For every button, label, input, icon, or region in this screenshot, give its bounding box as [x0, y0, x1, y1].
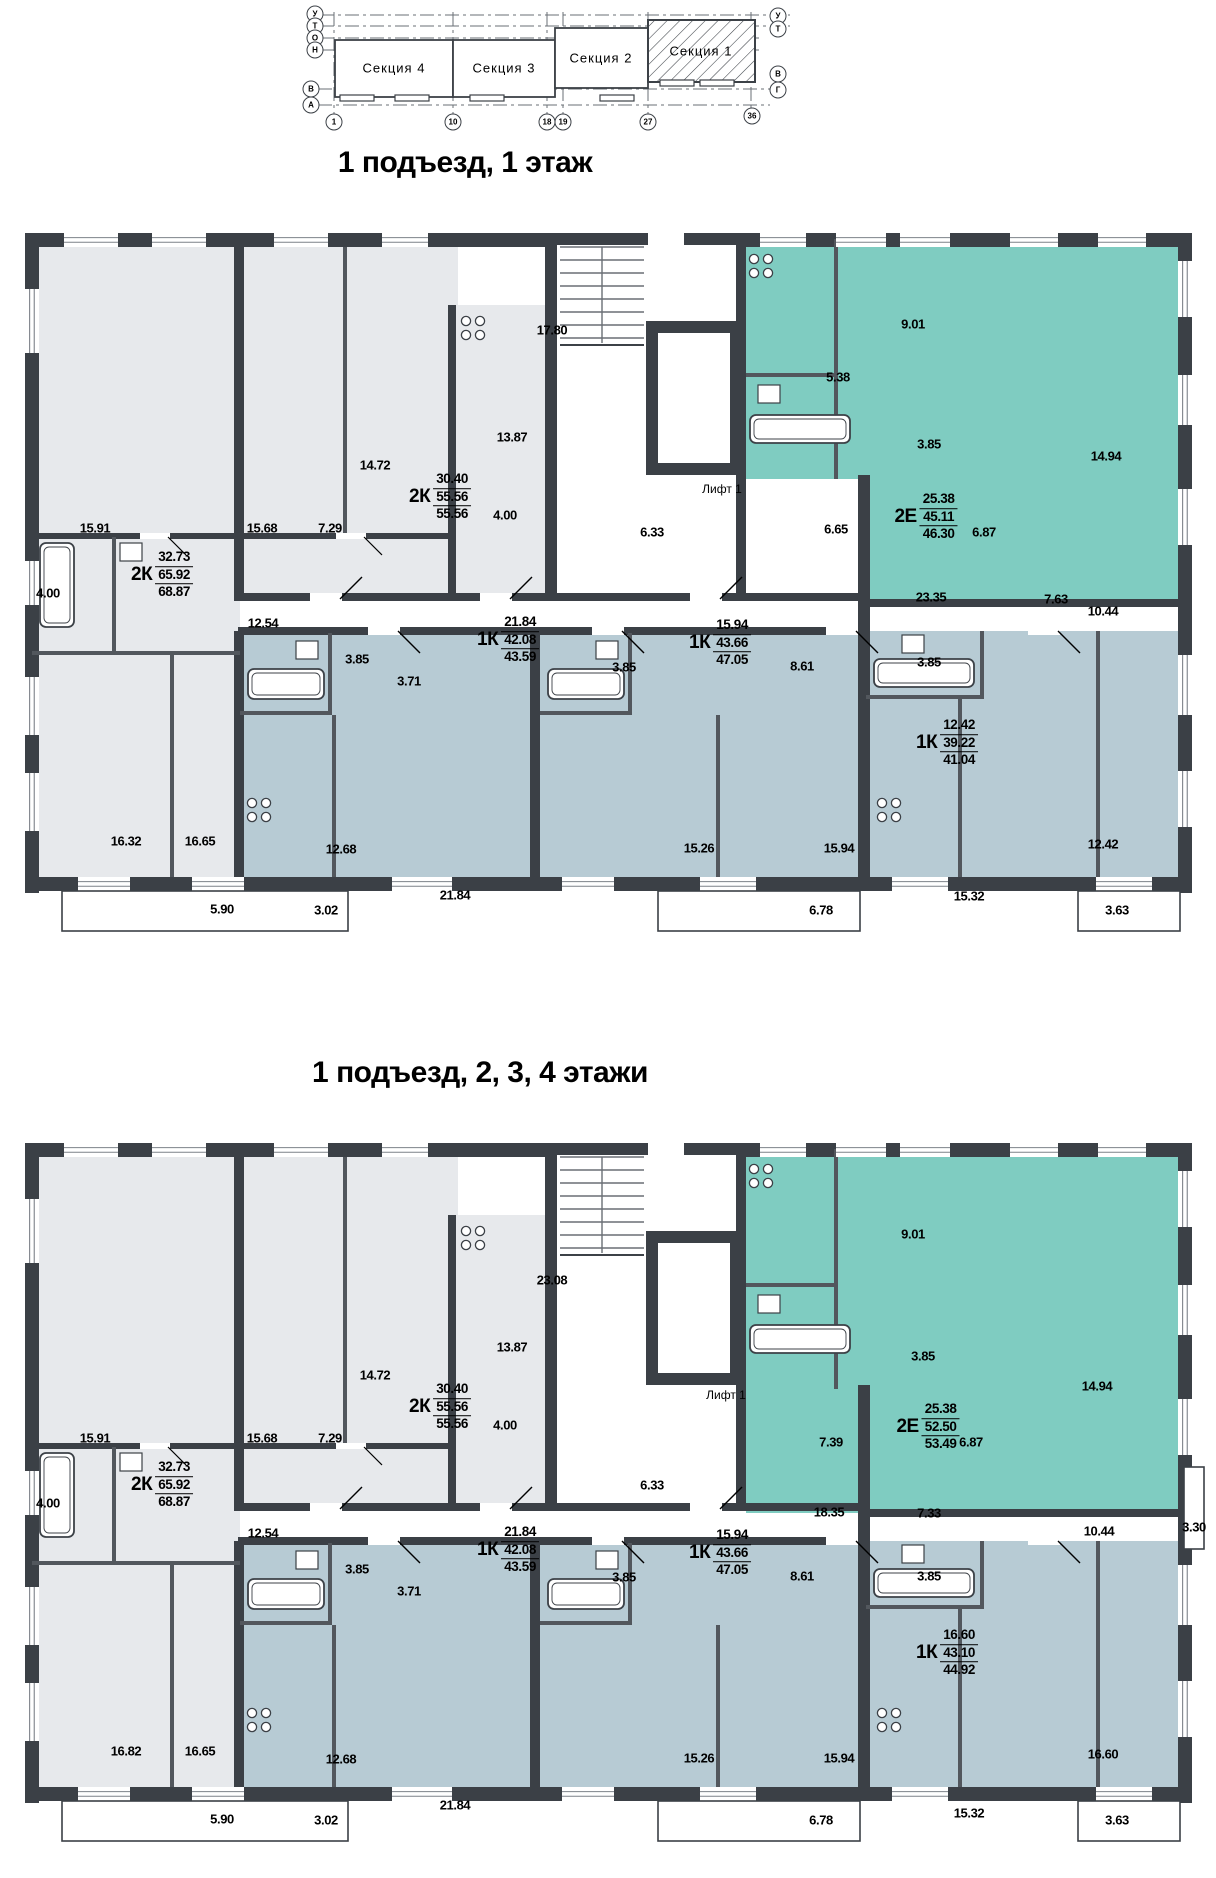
- axis-marker: В: [770, 66, 787, 83]
- apartment-area-value: 55.56: [433, 1399, 471, 1417]
- apartment-type: 2К: [131, 564, 152, 586]
- floor-plan-1: 15.9114.7215.687.2913.874.004.0012.5416.…: [0, 225, 1216, 965]
- dimension-label: 3.63: [1105, 1814, 1129, 1827]
- apartment-area-label: 2Е25.3852.5053.49: [896, 1401, 959, 1453]
- dimension-label: 4.00: [493, 509, 517, 522]
- dimension-label: 8.61: [790, 1570, 814, 1583]
- floorplan-page: Секция 4Секция 3Секция 2Секция 1УТОНВАУТ…: [0, 0, 1216, 1878]
- dimension-label: 7.29: [318, 1432, 342, 1445]
- dimension-label: 6.65: [824, 523, 848, 536]
- apartment-area-value: 55.56: [433, 1416, 471, 1433]
- dimension-label: 5.38: [826, 371, 850, 384]
- apartment-type: 1К: [916, 1642, 937, 1664]
- axis-marker: А: [303, 97, 320, 114]
- apartment-area-label: 2К32.7365.9268.87: [131, 1459, 193, 1511]
- apartment-area-label: 1К15.9443.6647.05: [689, 1527, 751, 1579]
- apartment-area-value: 68.87: [155, 1494, 193, 1511]
- apartment-area-value: 55.56: [433, 506, 471, 523]
- apartment-area-value: 25.38: [922, 1401, 960, 1419]
- dimension-label: 7.39: [819, 1436, 843, 1449]
- apartment-area-value: 25.38: [920, 491, 958, 509]
- apartment-area-value: 52.50: [922, 1419, 960, 1437]
- apartment-type: 1К: [689, 1542, 710, 1564]
- dimension-label: 15.32: [954, 1807, 985, 1820]
- dimension-label: 23.08: [537, 1274, 568, 1287]
- apartment-area-label: 2К32.7365.9268.87: [131, 549, 193, 601]
- apartment-area-value: 65.92: [155, 567, 193, 585]
- dimension-label: 8.61: [790, 660, 814, 673]
- apartment-area-value: 55.56: [433, 489, 471, 507]
- apartment-area-value: 21.84: [501, 1524, 539, 1542]
- dimension-label: 3.85: [917, 1570, 941, 1583]
- apartment-area-label: 1К16.6043.1044.92: [916, 1627, 978, 1679]
- dimension-label: 3.30: [1182, 1521, 1206, 1534]
- axis-marker: 18: [539, 114, 556, 131]
- axis-marker: В: [303, 81, 320, 98]
- apartment-type: 2К: [409, 486, 430, 508]
- dimension-label: 16.65: [185, 1745, 216, 1758]
- dimension-label: 15.32: [954, 890, 985, 903]
- floor-plan-title-2: 1 подъезд, 2, 3, 4 этажи: [220, 1056, 740, 1090]
- apartment-type: 1К: [916, 732, 937, 754]
- dimension-label: 13.87: [497, 1341, 528, 1354]
- dimension-label: 16.32: [111, 835, 142, 848]
- apartment-area-value: 39.22: [940, 735, 978, 753]
- dimension-label: 6.78: [809, 904, 833, 917]
- section-label: Секция 2: [570, 51, 633, 66]
- apartment-area-label: 2К30.4055.5655.56: [409, 471, 471, 523]
- axis-marker: 10: [445, 114, 462, 131]
- apartment-area-value: 15.94: [713, 1527, 751, 1545]
- apartment-area-value: 45.11: [920, 509, 958, 527]
- axis-marker: 19: [555, 114, 572, 131]
- floor-plan-title-1: 1 подъезд, 1 этаж: [230, 146, 700, 180]
- site-plan-drawing: [0, 0, 1216, 135]
- apartment-area-value: 16.60: [940, 1627, 978, 1645]
- dimension-label: 12.54: [248, 617, 279, 630]
- apartment-area-label: 2Е25.3845.1146.30: [894, 491, 957, 543]
- dimension-label: 21.84: [440, 1799, 471, 1812]
- dimension-label: 14.72: [360, 459, 391, 472]
- dimension-label: 3.02: [314, 1814, 338, 1827]
- section-label: Секция 1: [670, 44, 733, 59]
- apartment-area-value: 46.30: [920, 526, 958, 543]
- apartment-area-value: 41.04: [940, 752, 978, 769]
- axis-marker: Н: [307, 42, 324, 59]
- dimension-label: 9.01: [901, 1228, 925, 1241]
- dimension-label: 15.68: [247, 522, 278, 535]
- dimension-label: 3.85: [345, 653, 369, 666]
- apartment-type: 2Е: [894, 506, 916, 528]
- lift-label: Лифт 1: [706, 1388, 746, 1402]
- dimension-label: 14.94: [1091, 450, 1122, 463]
- apartment-area-value: 44.92: [940, 1662, 978, 1679]
- dimension-label: 5.90: [210, 1813, 234, 1826]
- dimension-label: 14.94: [1082, 1380, 1113, 1393]
- apartment-type: 2К: [409, 1396, 430, 1418]
- dimension-label: 3.71: [397, 675, 421, 688]
- apartment-area-value: 32.73: [155, 549, 193, 567]
- dimension-label: 15.91: [80, 522, 111, 535]
- dimension-label: 16.65: [185, 835, 216, 848]
- axis-marker: 36: [744, 108, 761, 125]
- apartment-area-value: 68.87: [155, 584, 193, 601]
- dimension-label: 14.72: [360, 1369, 391, 1382]
- apartment-area-value: 43.66: [713, 635, 751, 653]
- dimension-label: 12.42: [1088, 838, 1119, 851]
- dimension-label: 13.87: [497, 431, 528, 444]
- dimension-label: 7.63: [1044, 593, 1068, 606]
- axis-marker: 27: [640, 114, 657, 131]
- apartment-area-value: 53.49: [922, 1436, 960, 1453]
- dimension-label: 3.85: [917, 656, 941, 669]
- apartment-area-value: 21.84: [501, 614, 539, 632]
- apartment-area-value: 47.05: [713, 1562, 751, 1579]
- apartment-type: 1К: [689, 632, 710, 654]
- dimension-label: 6.33: [640, 1479, 664, 1492]
- apartment-area-label: 1К15.9443.6647.05: [689, 617, 751, 669]
- dimension-label: 7.33: [917, 1507, 941, 1520]
- apartment-area-value: 15.94: [713, 617, 751, 635]
- dimension-label: 3.85: [612, 661, 636, 674]
- apartment-type: 1К: [477, 629, 498, 651]
- dimension-label: 16.82: [111, 1745, 142, 1758]
- apartment-area-label: 1К21.8442.0843.59: [477, 614, 539, 666]
- dimension-label: 3.85: [911, 1350, 935, 1363]
- axis-marker: Г: [770, 82, 787, 99]
- apartment-area-value: 47.05: [713, 652, 751, 669]
- dimension-label: 3.85: [917, 438, 941, 451]
- dimension-label: 3.71: [397, 1585, 421, 1598]
- dimension-label: 10.44: [1084, 1525, 1115, 1538]
- dimension-label: 4.00: [493, 1419, 517, 1432]
- dimension-label: 17.80: [537, 324, 568, 337]
- dimension-label: 16.60: [1088, 1748, 1119, 1761]
- dimension-label: 10.44: [1088, 605, 1119, 618]
- apartment-area-value: 43.59: [501, 1559, 539, 1576]
- dimension-label: 15.94: [824, 842, 855, 855]
- dimension-label: 6.33: [640, 526, 664, 539]
- apartment-area-value: 43.10: [940, 1645, 978, 1663]
- apartment-area-value: 42.08: [501, 632, 539, 650]
- dimension-label: 3.85: [345, 1563, 369, 1576]
- dimension-label: 3.02: [314, 904, 338, 917]
- apartment-area-label: 1К12.4239.2241.04: [916, 717, 978, 769]
- dimension-label: 6.87: [959, 1436, 983, 1449]
- axis-marker: Т: [770, 21, 787, 38]
- apartment-area-label: 1К21.8442.0843.59: [477, 1524, 539, 1576]
- site-plan-diagram: Секция 4Секция 3Секция 2Секция 1УТОНВАУТ…: [0, 0, 1216, 135]
- apartment-area-value: 32.73: [155, 1459, 193, 1477]
- dimension-label: 6.87: [972, 526, 996, 539]
- dimension-label: 15.26: [684, 842, 715, 855]
- floor-plan-2: 15.9114.7215.687.2913.874.004.0012.5423.…: [0, 1135, 1216, 1875]
- dimension-label: 21.84: [440, 889, 471, 902]
- dimension-label: 12.54: [248, 1527, 279, 1540]
- apartment-type: 1К: [477, 1539, 498, 1561]
- dimension-label: 15.94: [824, 1752, 855, 1765]
- dimension-label: 12.68: [326, 843, 357, 856]
- dimension-label: 4.00: [36, 1497, 60, 1510]
- apartment-area-value: 12.42: [940, 717, 978, 735]
- dimension-label: 3.85: [612, 1571, 636, 1584]
- dimension-label: 3.63: [1105, 904, 1129, 917]
- dimension-label: 7.29: [318, 522, 342, 535]
- dimension-label: 23.35: [916, 591, 947, 604]
- apartment-area-label: 2К30.4055.5655.56: [409, 1381, 471, 1433]
- apartment-area-value: 43.59: [501, 649, 539, 666]
- dimension-label: 18.35: [814, 1506, 845, 1519]
- dimension-label: 12.68: [326, 1753, 357, 1766]
- dimension-label: 15.68: [247, 1432, 278, 1445]
- dimension-label: 6.78: [809, 1814, 833, 1827]
- dimension-label: 15.91: [80, 1432, 111, 1445]
- dimension-label: 5.90: [210, 903, 234, 916]
- lift-label: Лифт 1: [702, 482, 742, 496]
- dimension-label: 4.00: [36, 587, 60, 600]
- section-label: Секция 3: [473, 61, 536, 76]
- apartment-type: 2К: [131, 1474, 152, 1496]
- dimension-label: 15.26: [684, 1752, 715, 1765]
- apartment-area-value: 43.66: [713, 1545, 751, 1563]
- apartment-area-value: 30.40: [433, 471, 471, 489]
- apartment-type: 2Е: [896, 1416, 918, 1438]
- section-label: Секция 4: [363, 61, 426, 76]
- apartment-area-value: 30.40: [433, 1381, 471, 1399]
- axis-marker: 1: [326, 114, 343, 131]
- apartment-area-value: 65.92: [155, 1477, 193, 1495]
- dimension-label: 9.01: [901, 318, 925, 331]
- apartment-area-value: 42.08: [501, 1542, 539, 1560]
